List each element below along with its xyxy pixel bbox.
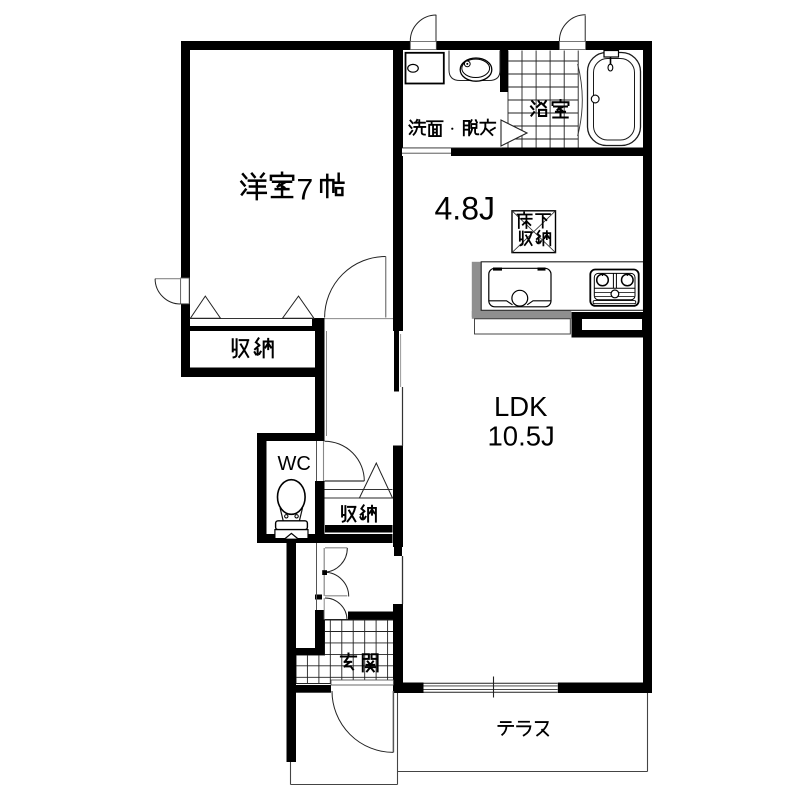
svg-text:10.5J: 10.5J xyxy=(488,421,555,452)
svg-text:7: 7 xyxy=(297,174,314,207)
svg-text:4.8J: 4.8J xyxy=(435,191,495,227)
svg-text:LDK: LDK xyxy=(494,391,548,422)
svg-text:WC: WC xyxy=(278,453,311,475)
